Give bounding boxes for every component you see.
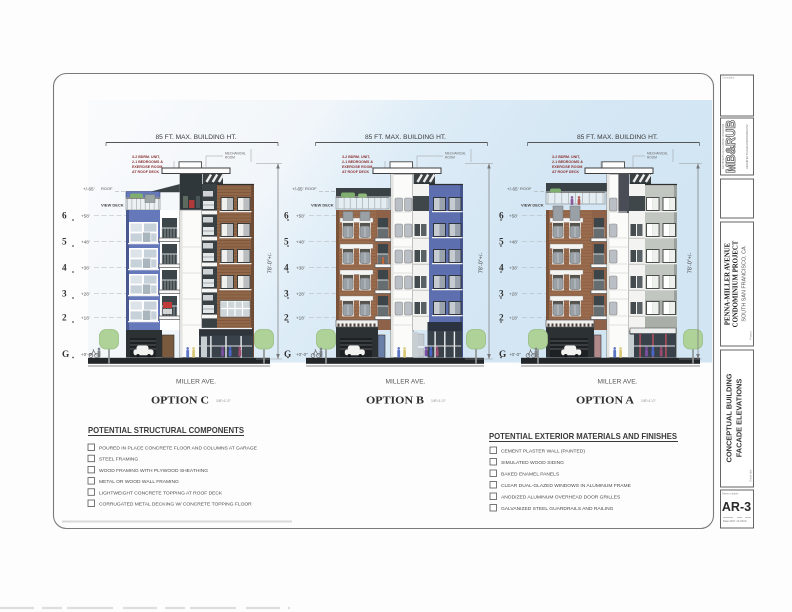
svg-text:VIEW DECK: VIEW DECK	[311, 203, 334, 208]
svg-text:AT ROOF DECK: AT ROOF DECK	[342, 170, 369, 174]
svg-text:+38′: +38′	[509, 266, 518, 271]
svg-text:AR-3: AR-3	[722, 500, 751, 514]
svg-text:Sheet number: Sheet number	[722, 492, 738, 496]
svg-text:MILLER AVE.: MILLER AVE.	[176, 380, 216, 386]
svg-text:3-2 BDRM. UNIT,: 3-2 BDRM. UNIT,	[132, 155, 160, 159]
svg-text:2-1 BEDROOMS &: 2-1 BEDROOMS &	[132, 160, 163, 164]
svg-text:5: 5	[62, 238, 67, 248]
svg-text:+18′: +18′	[296, 316, 305, 321]
svg-text:Consultant: Consultant	[722, 76, 735, 80]
svg-text:ROOF: ROOF	[520, 186, 532, 191]
svg-text:+/-65′: +/-65′	[507, 187, 519, 192]
svg-text:+28′: +28′	[81, 292, 90, 297]
svg-text:AT ROOF DECK: AT ROOF DECK	[132, 170, 159, 174]
svg-text:EXERCISE ROOM: EXERCISE ROOM	[552, 165, 582, 169]
svg-text:CLEAR DUAL-GLAZED WINDOWS IN A: CLEAR DUAL-GLAZED WINDOWS IN ALUMINUM FR…	[501, 483, 632, 489]
svg-text:+0′-0″: +0′-0″	[296, 352, 308, 357]
svg-text:MB&RUB: MB&RUB	[723, 120, 738, 173]
svg-text:Date MAY 14 2010: Date MAY 14 2010	[723, 519, 747, 523]
svg-text:CORRUGATED METAL DECKING W/ CO: CORRUGATED METAL DECKING W/ CONCRETE TOP…	[99, 502, 252, 508]
svg-text:85 FT. MAX. BUILDING HT.: 85 FT. MAX. BUILDING HT.	[365, 134, 446, 141]
svg-text:+/-65′: +/-65′	[292, 187, 304, 192]
svg-text:PENNA-MILLER AVENUE: PENNA-MILLER AVENUE	[725, 242, 732, 325]
svg-text:+/-65′: +/-65′	[83, 187, 95, 192]
svg-text:ROOM: ROOM	[225, 156, 235, 160]
svg-text:78′-0″+/-: 78′-0″+/-	[688, 253, 694, 274]
svg-text:1/8″=1′-0″: 1/8″=1′-0″	[641, 399, 656, 403]
svg-text:POURED IN PLACE CONCRETE FLOOR: POURED IN PLACE CONCRETE FLOOR AND COLUM…	[99, 446, 258, 452]
svg-text:+48′: +48′	[296, 240, 305, 245]
svg-text:ARCHITECTS AND ASSOCIATES INC: ARCHITECTS AND ASSOCIATES INC	[745, 124, 749, 169]
svg-text:BAKED ENAMEL PANELS: BAKED ENAMEL PANELS	[501, 472, 560, 478]
svg-text:+38′: +38′	[296, 266, 305, 271]
svg-text:EXERCISE ROOM: EXERCISE ROOM	[132, 165, 162, 169]
svg-text:1/8″=1′-0″: 1/8″=1′-0″	[431, 399, 446, 403]
svg-text:+28′: +28′	[296, 292, 305, 297]
svg-text:+58′: +58′	[509, 214, 518, 219]
svg-text:GALVANIZED STEEL GUARDRAILS AN: GALVANIZED STEEL GUARDRAILS AND RAILING	[501, 506, 614, 512]
svg-text:VIEW DECK: VIEW DECK	[521, 203, 544, 208]
svg-text:2-1 BEDROOMS &: 2-1 BEDROOMS &	[342, 160, 373, 164]
svg-text:+48′: +48′	[509, 240, 518, 245]
svg-text:POTENTIAL EXTERIOR MATERIALS A: POTENTIAL EXTERIOR MATERIALS AND FINISHE…	[489, 432, 678, 441]
svg-text:OPTION A: OPTION A	[576, 395, 634, 407]
svg-text:ROOF: ROOF	[101, 186, 113, 191]
svg-text:+0′-0″: +0′-0″	[509, 352, 521, 357]
svg-text:G: G	[284, 350, 291, 360]
svg-text:METAL OR WOOD WALL FRAMING: METAL OR WOOD WALL FRAMING	[99, 479, 179, 485]
svg-text:POTENTIAL STRUCTURAL COMPONENT: POTENTIAL STRUCTURAL COMPONENTS	[88, 426, 244, 435]
svg-text:SOUTH SAN FRANCISCO, CA: SOUTH SAN FRANCISCO, CA	[742, 246, 748, 322]
svg-text:G: G	[499, 350, 506, 360]
svg-text:+58′: +58′	[296, 214, 305, 219]
svg-text:85 FT. MAX. BUILDING HT.: 85 FT. MAX. BUILDING HT.	[156, 134, 237, 141]
svg-text:ANODIZED ALUMINUM OVERHEAD DOO: ANODIZED ALUMINUM OVERHEAD DOOR GRILLES	[501, 495, 621, 501]
svg-text:+18′: +18′	[81, 316, 90, 321]
svg-text:78′-0″+/-: 78′-0″+/-	[268, 253, 274, 274]
svg-text:VIEW DECK: VIEW DECK	[101, 203, 124, 208]
svg-text:3: 3	[62, 290, 67, 300]
svg-text:ROOM: ROOM	[445, 156, 455, 160]
svg-text:2-1 BEDROOMS &: 2-1 BEDROOMS &	[552, 160, 583, 164]
svg-text:ARCHITECTURE PLANNING INTERI: ARCHITECTURE PLANNING INTERIORS	[722, 123, 725, 169]
svg-text:LIGHTWEIGHT CONCRETE TOPPING A: LIGHTWEIGHT CONCRETE TOPPING AT ROOF DEC…	[99, 490, 223, 496]
svg-text:4: 4	[62, 264, 67, 274]
svg-text:1/8″=1′-0″: 1/8″=1′-0″	[216, 399, 231, 403]
svg-text:CONCEPTUAL BUILDING: CONCEPTUAL BUILDING	[725, 373, 734, 462]
svg-text:ROOM: ROOM	[647, 156, 657, 160]
svg-text:AT ROOF DECK: AT ROOF DECK	[552, 170, 579, 174]
svg-text:3-2 BDRM. UNIT,: 3-2 BDRM. UNIT,	[342, 155, 370, 159]
svg-text:WOOD FRAMING WITH PLYWOOD SHEA: WOOD FRAMING WITH PLYWOOD SHEATHING	[99, 468, 208, 474]
svg-text:2: 2	[62, 314, 67, 324]
svg-text:FACADE ELEVATIONS: FACADE ELEVATIONS	[735, 379, 744, 458]
svg-text:+28′: +28′	[509, 292, 518, 297]
svg-text:6: 6	[62, 212, 67, 222]
svg-text:+38′: +38′	[81, 266, 90, 271]
svg-text:+58′: +58′	[81, 214, 90, 219]
svg-text:+0′-0″: +0′-0″	[81, 352, 93, 357]
svg-text:85 FT. MAX. BUILDING HT.: 85 FT. MAX. BUILDING HT.	[577, 134, 658, 141]
svg-text:STEEL FRAMING: STEEL FRAMING	[99, 457, 138, 463]
svg-text:Sheet title: Sheet title	[749, 469, 753, 482]
svg-text:OPTION B: OPTION B	[366, 395, 425, 407]
svg-text:OPTION C: OPTION C	[151, 395, 209, 407]
svg-text:SIMULATED WOOD SIDING: SIMULATED WOOD SIDING	[501, 460, 564, 466]
svg-text:CONDOMINIUM PROJECT: CONDOMINIUM PROJECT	[733, 240, 740, 327]
svg-text:G: G	[62, 350, 69, 360]
svg-text:3-2 BDRM. UNIT,: 3-2 BDRM. UNIT,	[552, 155, 580, 159]
svg-text:+48′: +48′	[81, 240, 90, 245]
svg-text:ROOF: ROOF	[305, 186, 317, 191]
svg-text:MILLER AVE.: MILLER AVE.	[598, 380, 638, 386]
svg-text:+18′: +18′	[509, 316, 518, 321]
svg-text:MILLER AVE.: MILLER AVE.	[386, 380, 426, 386]
svg-text:Project: Project	[749, 331, 753, 340]
svg-text:CEMENT PLASTER WALL (PAINTED): CEMENT PLASTER WALL (PAINTED)	[501, 449, 585, 455]
svg-text:78′-0″+/-: 78′-0″+/-	[479, 253, 485, 274]
svg-text:EXERCISE ROOM: EXERCISE ROOM	[342, 165, 372, 169]
